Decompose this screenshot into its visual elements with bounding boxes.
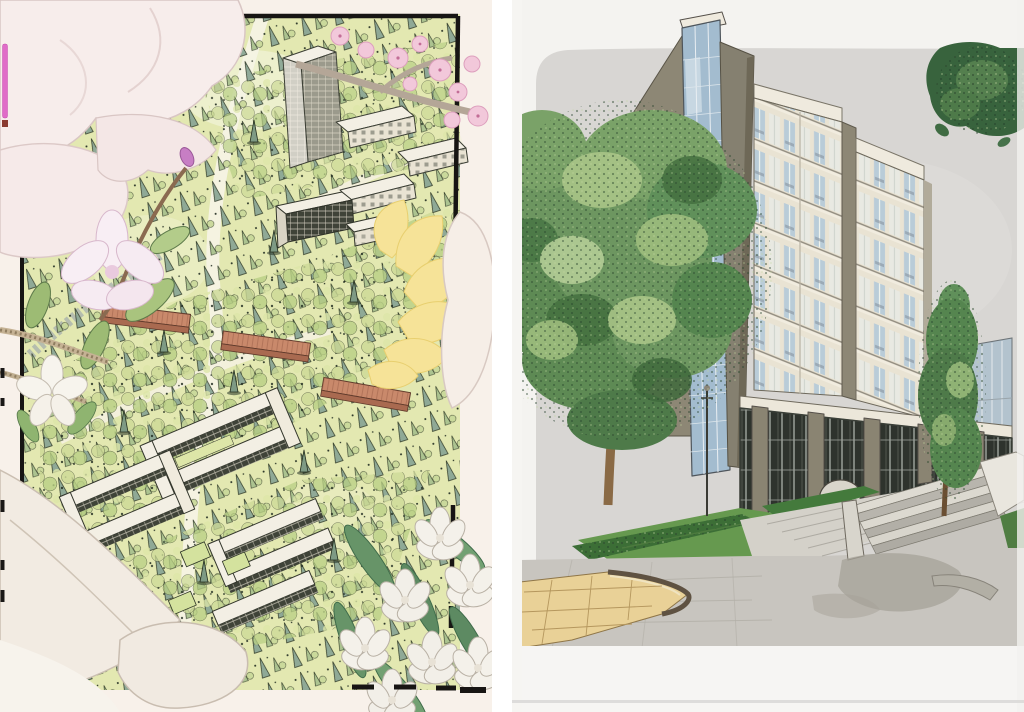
magenta-strip	[3, 44, 8, 118]
site-plan-rendering	[0, 0, 492, 712]
corner-foliage	[926, 42, 1024, 149]
middle-pier-wall	[842, 122, 856, 400]
red-tick	[2, 120, 8, 127]
photo-collage	[0, 0, 1024, 712]
facade-right-wing	[856, 152, 924, 418]
building-perspective-photo	[512, 0, 1024, 712]
building-perspective-rendering	[512, 0, 1024, 712]
tower-building	[283, 46, 343, 168]
site-plan-photo	[0, 0, 492, 712]
